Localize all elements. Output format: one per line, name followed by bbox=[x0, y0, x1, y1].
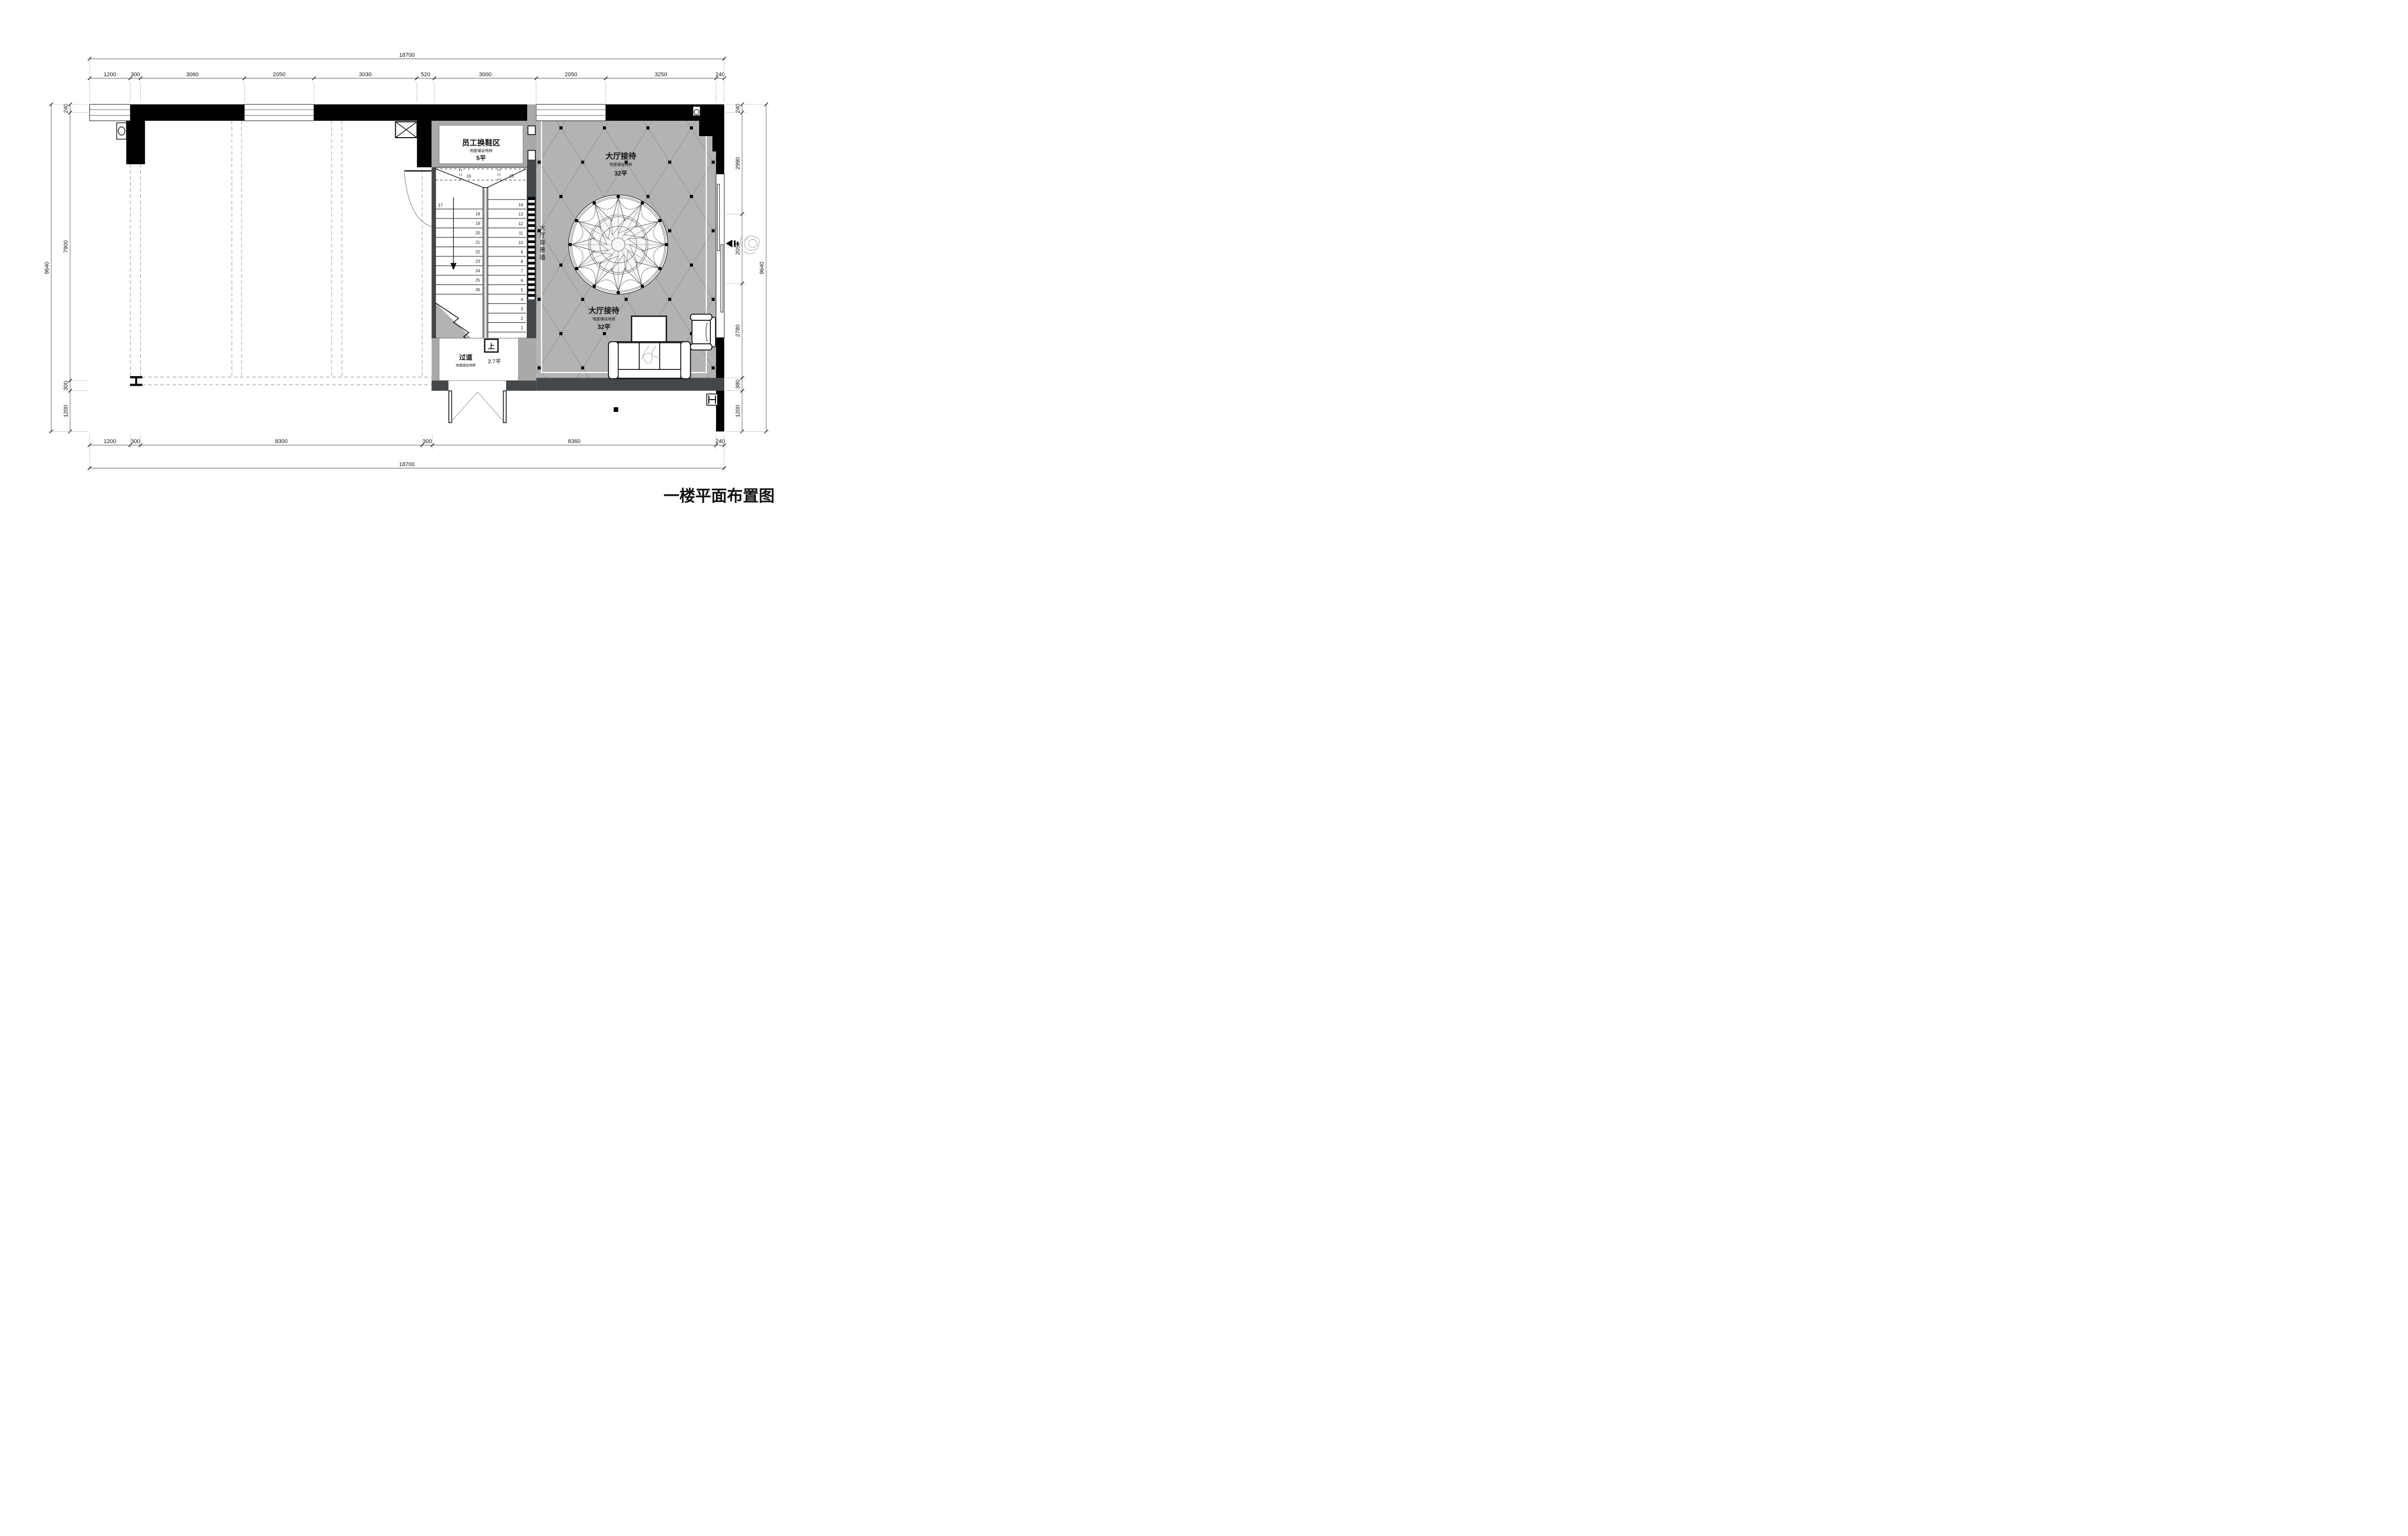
stair-step-number: 22 bbox=[475, 250, 480, 254]
dimension-label: 380 bbox=[735, 380, 741, 389]
column-marker bbox=[694, 109, 699, 115]
hall-name-bottom: 大厅接待 bbox=[589, 306, 619, 315]
dimension-label: 3000 bbox=[479, 72, 491, 78]
dimension-label: 2780 bbox=[735, 324, 741, 337]
hall-background-wall-label: 墙 bbox=[539, 254, 546, 261]
corridor-name: 过道 bbox=[459, 354, 472, 361]
staircase: 1615171819202122232425261413121110987654… bbox=[436, 167, 527, 349]
stair-step-number: 5 bbox=[521, 288, 524, 293]
stair-step-number: 24 bbox=[475, 269, 480, 273]
corridor-floor bbox=[439, 338, 518, 381]
dimension-label: 8300 bbox=[275, 438, 287, 445]
dimension-label: 18700 bbox=[399, 462, 415, 468]
stair-step-number: 10 bbox=[518, 240, 523, 245]
dimension-label: 9640 bbox=[44, 261, 50, 274]
pier-shoe-room bbox=[417, 121, 432, 167]
dimension-label: 240 bbox=[715, 72, 725, 78]
entry-door-leaf bbox=[504, 391, 507, 423]
tile-dot bbox=[646, 195, 649, 198]
stair-step-number: 11 bbox=[519, 231, 524, 236]
tile-dot bbox=[581, 298, 584, 301]
stair-step-number: 8 bbox=[521, 259, 524, 264]
tile-dot bbox=[668, 298, 671, 301]
tile-dot bbox=[538, 161, 541, 164]
dimension-label: 240 bbox=[63, 104, 69, 113]
dimension-label: 8360 bbox=[568, 438, 580, 445]
window-top bbox=[244, 104, 314, 121]
corridor-area: 3.7平 bbox=[488, 359, 501, 365]
hall-note-bottom: 地面铺设地砖 bbox=[593, 316, 616, 321]
tile-dot bbox=[559, 264, 562, 267]
floor-plan-canvas: 1615171819202122232425261413121110987654… bbox=[0, 0, 802, 512]
stair-step-number: 9 bbox=[521, 250, 524, 255]
dimension-label: 18700 bbox=[399, 52, 415, 58]
stair-step-number: 23 bbox=[475, 259, 480, 264]
wall-opening bbox=[528, 150, 536, 160]
dimension-label: 300 bbox=[63, 381, 69, 390]
stair-step-number: 20 bbox=[475, 231, 480, 235]
hall-background-wall-label: 景 bbox=[539, 247, 546, 254]
stair-step-number: 18 bbox=[475, 212, 480, 216]
tile-dot bbox=[538, 298, 541, 301]
stair-up-marker-label: 上 bbox=[488, 343, 494, 350]
hall-background-wall-label: 大 bbox=[539, 224, 546, 231]
flower-sketch bbox=[740, 236, 759, 254]
tile-dot bbox=[712, 229, 715, 232]
stair-step-number: 15 bbox=[510, 174, 514, 179]
dimension-label: 1200 bbox=[104, 438, 116, 445]
tile-dot bbox=[603, 126, 606, 129]
dimension-label: 1200 bbox=[104, 72, 116, 78]
dimension-label: 3030 bbox=[359, 72, 372, 78]
stair-step-number: 16 bbox=[467, 174, 471, 179]
hall-background-wall-hatch bbox=[528, 197, 535, 299]
hall-background-wall-label: 厅 bbox=[539, 233, 546, 239]
tile-dot bbox=[559, 195, 562, 198]
stair-handrail bbox=[483, 188, 488, 339]
stair-step-number: 14 bbox=[518, 203, 523, 207]
corridor-note: 地面铺设地砖 bbox=[456, 363, 476, 367]
stair-step-number: 19 bbox=[475, 222, 480, 226]
dimension-label: 1200 bbox=[63, 405, 69, 417]
down-arrow-icon bbox=[450, 263, 457, 270]
door-swing-arc bbox=[404, 172, 431, 227]
dimension-label: 300 bbox=[131, 72, 140, 78]
stair-step-number: 7 bbox=[521, 269, 524, 274]
staff-shoe-area-name: 员工换鞋区 bbox=[462, 138, 500, 147]
stair-step-number: 21 bbox=[475, 240, 480, 245]
tile-dot bbox=[581, 366, 584, 369]
stair-outline bbox=[436, 167, 527, 338]
dimension-label: 3250 bbox=[655, 72, 667, 78]
entry-door-leaf bbox=[449, 391, 452, 423]
left-open-room bbox=[130, 121, 432, 386]
dimension-label: 3060 bbox=[186, 72, 199, 78]
stair-step-number: 26 bbox=[475, 288, 480, 292]
tile-dot bbox=[690, 195, 693, 198]
corridor-and-entrance bbox=[431, 338, 536, 423]
tile-dot bbox=[712, 366, 715, 369]
tile-dot bbox=[712, 161, 715, 164]
misc-annotations bbox=[726, 236, 760, 254]
stair-step-number: 12 bbox=[518, 222, 523, 226]
drawing-title: 一楼平面布置图 bbox=[664, 487, 775, 505]
column-dot bbox=[614, 407, 618, 412]
dimension-label: 300 bbox=[423, 438, 432, 445]
window-top bbox=[536, 104, 606, 121]
staff-shoe-area-note: 地面铺设地砖 bbox=[470, 148, 493, 153]
tile-dot bbox=[690, 126, 693, 129]
tile-dot bbox=[668, 229, 671, 232]
i-beam-column bbox=[130, 376, 142, 386]
tile-dot bbox=[668, 161, 671, 164]
hall-note-top: 地面铺设地砖 bbox=[610, 162, 633, 167]
dimension-label: 1200 bbox=[735, 405, 741, 417]
tile-dot bbox=[538, 366, 541, 369]
floor-medallion bbox=[569, 195, 668, 294]
hall-area-bottom: 32平 bbox=[597, 323, 610, 331]
stair-step-number: 17 bbox=[438, 203, 443, 208]
dimension-label: 520 bbox=[421, 72, 430, 78]
tile-dot bbox=[581, 161, 584, 164]
stair-step-number: 13 bbox=[518, 212, 523, 217]
tile-dot bbox=[646, 126, 649, 129]
h-steel-column bbox=[707, 394, 718, 405]
hall-background-wall-label: 背 bbox=[539, 239, 546, 246]
staff-shoe-area-area: 5平 bbox=[476, 155, 486, 162]
tile-dot bbox=[690, 264, 693, 267]
stair-step-number: 1 bbox=[521, 326, 524, 331]
stair-step-number: 25 bbox=[475, 278, 480, 283]
wall-opening bbox=[528, 126, 536, 135]
tile-dot bbox=[712, 298, 715, 301]
tile-dot bbox=[625, 298, 628, 301]
door-swing-line bbox=[450, 392, 478, 423]
hall-bottom-wall bbox=[536, 378, 724, 391]
sofa bbox=[609, 342, 690, 379]
stair-step-number: 6 bbox=[521, 278, 524, 283]
stair-step-number: 4 bbox=[521, 297, 524, 302]
exterior-wall-top bbox=[90, 104, 724, 121]
column-top-left bbox=[126, 121, 145, 164]
door-swing-line bbox=[478, 392, 505, 423]
tile-dot bbox=[559, 332, 562, 335]
exterior-wall-right-upper bbox=[716, 104, 724, 174]
stair-step-number: 3 bbox=[521, 307, 524, 312]
stair-step-number: 2 bbox=[521, 316, 524, 321]
dimension-label: 240 bbox=[735, 104, 741, 113]
dimension-label: 2050 bbox=[565, 72, 577, 78]
hall-name-top: 大厅接待 bbox=[605, 151, 636, 161]
dimension-label: 240 bbox=[715, 438, 725, 445]
window-top bbox=[90, 104, 131, 121]
floor-plan-page: 1615171819202122232425261413121110987654… bbox=[0, 0, 802, 512]
tile-dot bbox=[559, 126, 562, 129]
door-hinge-symbol bbox=[118, 127, 125, 135]
dimension-label: 9640 bbox=[759, 261, 765, 274]
hall-area-top: 32平 bbox=[614, 170, 627, 177]
armchair bbox=[690, 314, 715, 350]
dimension-label: 2990 bbox=[735, 157, 741, 169]
dimension-label: 2050 bbox=[273, 72, 285, 78]
dimension-label: 7900 bbox=[63, 240, 69, 253]
dimension-label: 300 bbox=[131, 438, 140, 445]
tile-dot bbox=[603, 332, 606, 335]
